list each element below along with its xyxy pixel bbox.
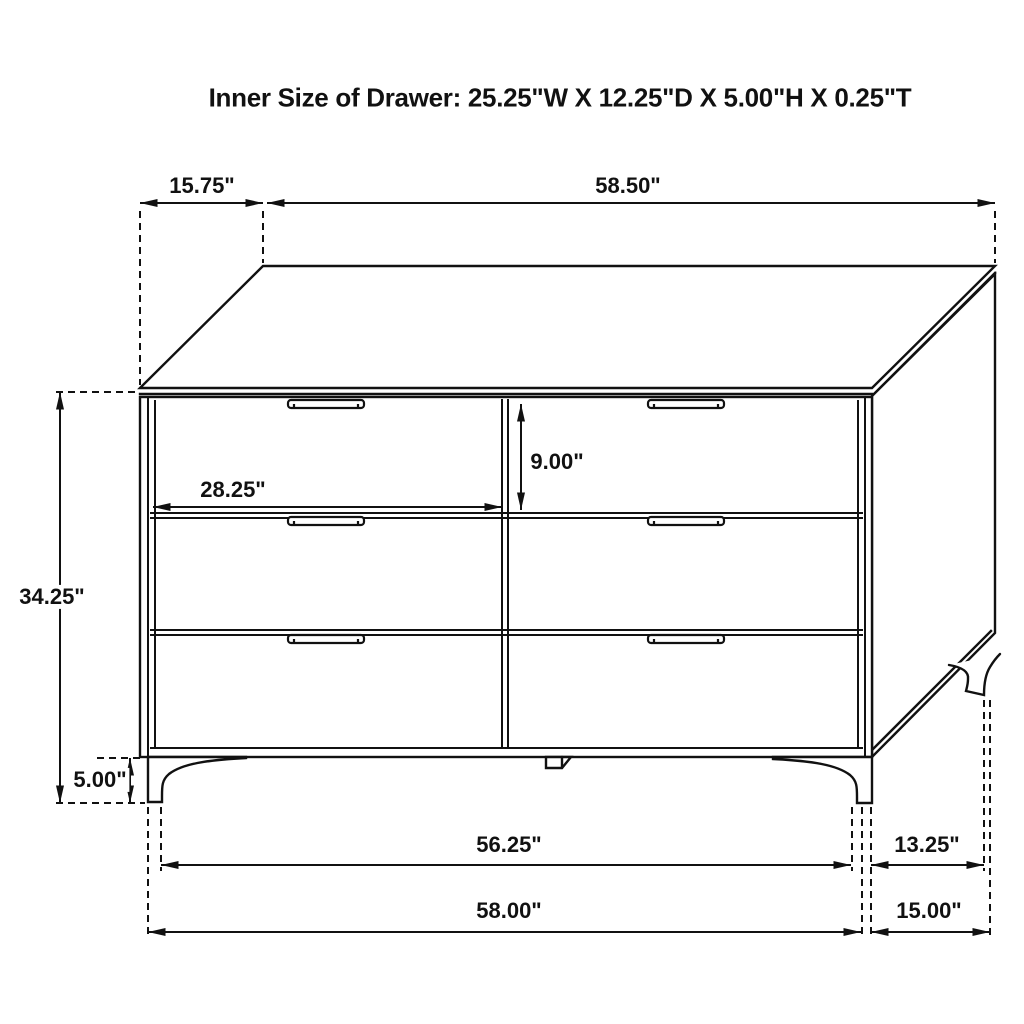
top-face [140, 266, 995, 388]
drawer-handle [648, 400, 724, 408]
dim-label-top-width: 58.50" [592, 174, 663, 198]
cabinet-body [140, 266, 995, 757]
drawer-handle [288, 635, 364, 643]
dim-label-drawer-opening-width: 28.25" [197, 478, 268, 502]
drawer-handle [288, 400, 364, 408]
furniture-dimension-diagram: Inner Size of Drawer: 25.25"W X 12.25"D … [0, 0, 1024, 1024]
dim-label-top-depth: 15.75" [166, 174, 237, 198]
dim-label-front-leg-span: 56.25" [473, 833, 544, 857]
dim-label-drawer-opening-height: 9.00" [527, 450, 586, 474]
dim-label-overall-width: 58.00" [473, 899, 544, 923]
center-back-foot [546, 757, 571, 768]
drawer-handle [288, 517, 364, 525]
dim-label-overall-height: 34.25" [16, 585, 87, 609]
dim-label-overall-depth: 15.00" [893, 899, 964, 923]
dresser-line-drawing [0, 0, 1024, 1024]
dim-label-leg-height: 5.00" [70, 768, 129, 792]
diagram-title: Inner Size of Drawer: 25.25"W X 12.25"D … [209, 83, 912, 114]
dim-label-side-leg-span: 13.25" [891, 833, 962, 857]
drawer-handle [648, 517, 724, 525]
front-face [140, 397, 872, 757]
front-left-leg [148, 757, 246, 802]
front-right-leg [773, 757, 872, 803]
drawer-handle [648, 635, 724, 643]
